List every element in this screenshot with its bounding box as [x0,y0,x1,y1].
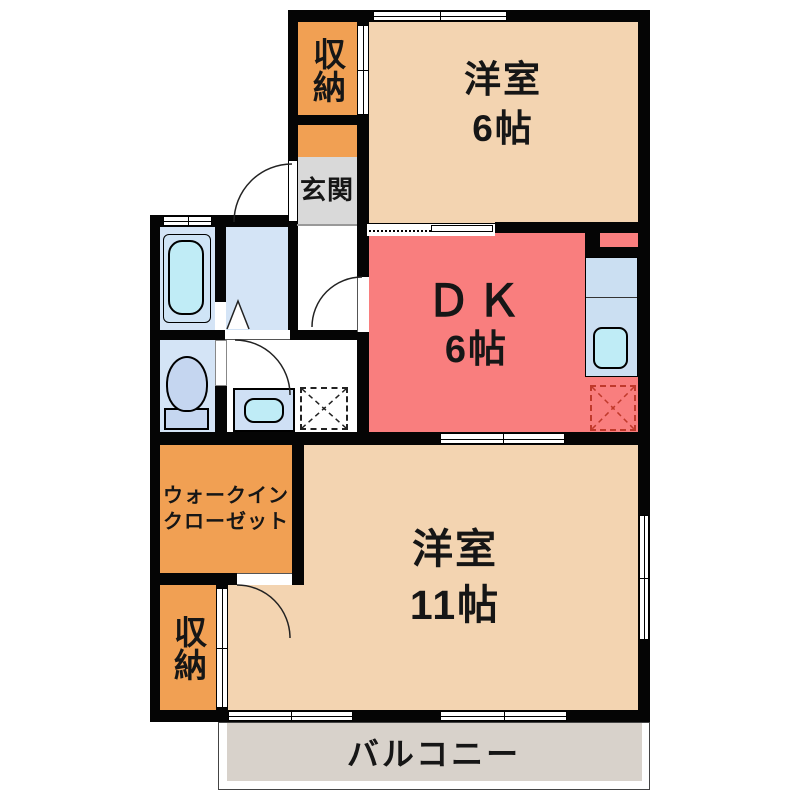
bath-door-opening [215,302,226,330]
western11-name: 洋室 [412,526,498,573]
dk-door-arc [312,277,362,327]
wall-segment [215,386,227,432]
window [228,711,353,721]
bathtub-inner [168,240,204,315]
balcony-label: バルコニー [250,726,618,782]
window [440,711,567,721]
powder-door-opening [225,330,290,340]
washing-machine-space [300,387,348,430]
window [373,11,507,21]
window [163,216,212,226]
western6-label: 洋室 6帖 [368,30,638,180]
dk-name: ＤＫ [427,277,527,328]
western6-size: 6帖 [472,108,534,151]
washbasin-bowl [244,398,284,423]
storage-top-label: 収納 [299,28,355,112]
wall-segment [150,432,650,445]
wall-segment [215,227,226,302]
wall-segment [288,115,369,125]
entrance-door-arc [234,164,292,222]
refrigerator-space [590,385,636,431]
partition-track [369,230,431,232]
floor-plan: 収納 玄関 洋室 6帖 ＤＫ 6帖 ウォークイン クローゼット 収納 洋室 11… [0,0,800,800]
sliding-partition [367,223,495,236]
toilet-bowl [166,356,208,412]
entrance-label: 玄関 [297,160,357,222]
counter-divider [586,297,637,298]
wall-segment [150,710,650,722]
toilet-door-opening [215,340,227,386]
western6-name: 洋室 [464,59,542,102]
western11-size: 11帖 [410,582,500,629]
dk-size: 6帖 [445,329,508,373]
dk-label: ＤＫ 6帖 [368,245,585,405]
wall-segment [585,232,600,258]
closet-door [216,588,228,708]
kitchen-counter [585,257,638,377]
wall-segment [495,222,638,233]
storage-bottom-label: 収納 [159,600,217,696]
washbasin-cabinet [233,388,295,432]
bathtub [163,234,211,323]
room-washroom [225,227,290,330]
western11-label: 洋室 11帖 [250,465,660,690]
kitchen-niche [600,232,640,247]
entrance-side-storage [297,125,357,157]
powder-door-arc [235,340,290,395]
sliding-door [440,433,565,444]
partition-leaf [431,225,493,232]
entrance-step-line [297,224,357,226]
kitchen-sink [593,327,628,369]
